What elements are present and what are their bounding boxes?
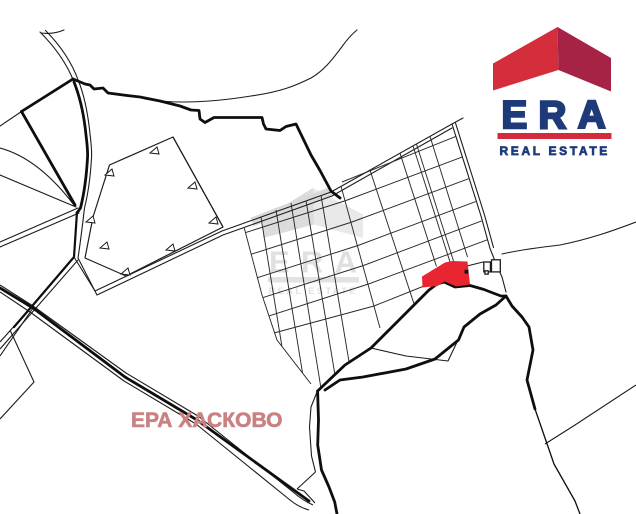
svg-text:REAL ESTATE: REAL ESTATE bbox=[500, 144, 610, 158]
svg-text:ЕРА ХАСКОВО: ЕРА ХАСКОВО bbox=[131, 409, 283, 432]
svg-text:ERA: ERA bbox=[502, 94, 606, 137]
